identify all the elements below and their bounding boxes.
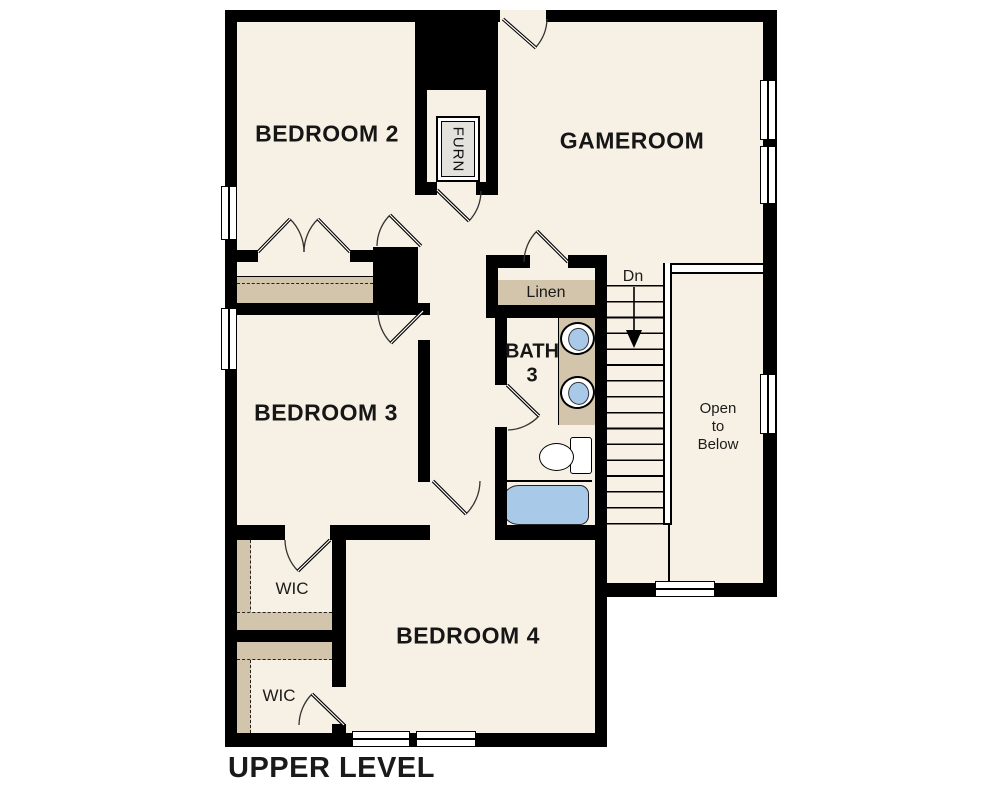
door-swing-bath3 xyxy=(507,385,539,430)
room-label-bath3: BATH xyxy=(505,341,559,364)
floor-plan: FURN xyxy=(0,0,1000,800)
open-to-below-line1: Open xyxy=(672,400,764,418)
room-label-wic-upper: WIC xyxy=(275,579,308,599)
door-swing-bedroom2-closet xyxy=(258,219,350,252)
door-swing-bedroom4 xyxy=(433,481,480,514)
room-label-bath3-number: 3 xyxy=(526,365,537,388)
door-swing-attic xyxy=(503,19,547,48)
open-to-below-line3: Below xyxy=(672,436,764,454)
plan-title: UPPER LEVEL xyxy=(228,752,435,785)
door-swing-furn xyxy=(437,190,481,221)
room-label-bedroom2: BEDROOM 2 xyxy=(255,121,399,148)
door-swing-wic-upper xyxy=(285,540,330,571)
stair-direction-label: Dn xyxy=(623,268,643,286)
room-label-wic-lower: WIC xyxy=(262,686,295,706)
room-label-linen: Linen xyxy=(526,284,565,302)
door-swing-bedroom3 xyxy=(378,311,423,343)
door-swing-bedroom2-entry xyxy=(377,215,421,246)
room-label-gameroom: GAMEROOM xyxy=(560,128,705,155)
door-swings-overlay xyxy=(0,0,1000,800)
room-label-bedroom4: BEDROOM 4 xyxy=(396,623,540,650)
open-to-below-label: Open to Below xyxy=(672,400,764,454)
door-swing-wic-lower xyxy=(299,694,344,725)
open-to-below-line2: to xyxy=(672,418,764,436)
door-swing-gameroom xyxy=(524,231,568,262)
stair-down-arrow-icon xyxy=(626,287,642,348)
room-label-bedroom3: BEDROOM 3 xyxy=(254,400,398,427)
